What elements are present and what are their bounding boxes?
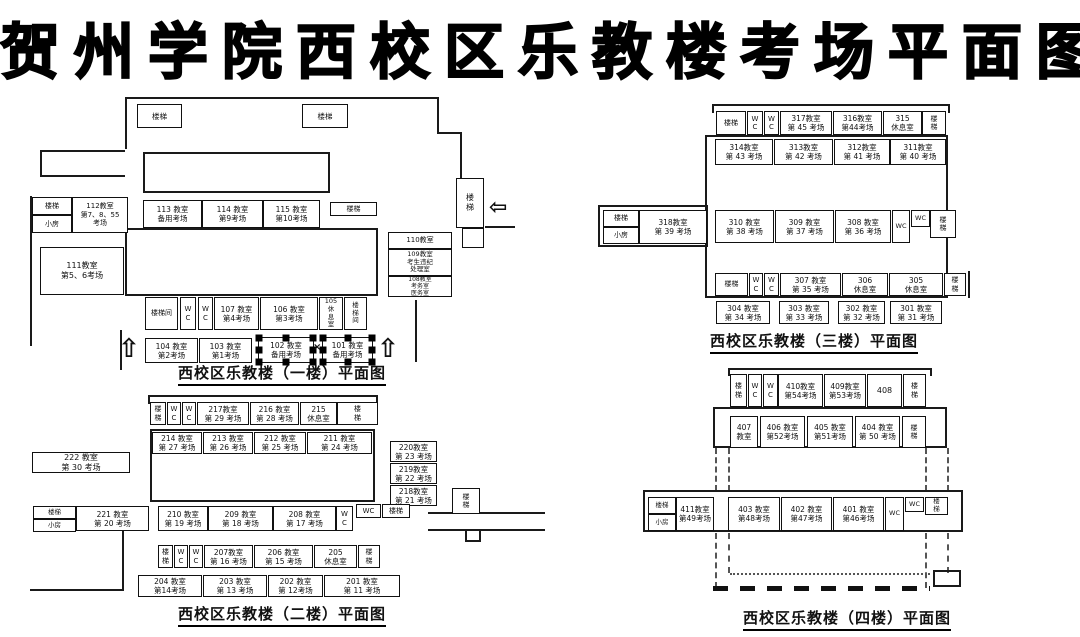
selection-handle[interactable] (310, 335, 317, 342)
room-label: 213 教室 第 26 考场 (210, 434, 247, 452)
stairs-box: 楼 梯 (902, 416, 926, 448)
room-label: 202 教室 第 12考场 (278, 577, 312, 595)
multiply-icon: × (313, 343, 321, 353)
room-label: 403 教室 第48考场 (738, 505, 770, 523)
room-label: 楼梯 (45, 202, 59, 210)
room-404: 404 教室 第 50 考场 (855, 416, 900, 448)
room-label: WC (889, 510, 900, 518)
stairs-box: 楼梯 (648, 497, 676, 514)
selection-handle[interactable] (283, 335, 290, 342)
room-label: 111教室 第5、6考场 (61, 261, 103, 280)
up-arrow-icon: ⇧ (377, 336, 399, 362)
room-label: W C (193, 548, 200, 565)
stairs-box: 楼梯 (716, 111, 746, 135)
room-label: 小房 (45, 220, 59, 228)
room-label: 311教室 第 40 考场 (900, 143, 937, 161)
room-212: 212 教室 第 25 考场 (254, 432, 306, 454)
wc-box: W C (336, 506, 353, 531)
room-label: 405 教室 第51考场 (814, 423, 846, 441)
room-label: 404 教室 第 50 考场 (859, 423, 896, 441)
wall-line (730, 573, 930, 575)
room-103: 103 教室 第1考场 (199, 338, 252, 363)
room-218: 218教室 第 21 考场 (390, 485, 437, 506)
room-label: 408 (877, 386, 892, 396)
room-label: 411教室 第49考场 (679, 505, 711, 523)
room-label: 楼 梯 (931, 115, 938, 132)
wc-box: W C (189, 545, 203, 568)
room-222: 222 教室 第 30 考场 (32, 452, 130, 473)
room-label: 410教室 第54考场 (784, 382, 816, 400)
room-label: 312教室 第 41 考场 (844, 143, 881, 161)
room-label: 102 教室 备用考场 (270, 341, 302, 359)
room-214: 214 教室 第 27 考场 (152, 432, 202, 454)
room-label: 楼 梯 (933, 498, 940, 514)
up-arrow-icon: ⇧ (118, 336, 140, 362)
stairwell-box: 楼 梯 间 (344, 297, 367, 330)
stairs-box: 楼 梯 (903, 374, 926, 407)
room-label: 楼梯间 (151, 309, 172, 317)
room-label: 222 教室 第 30 考场 (61, 453, 100, 472)
selection-handle[interactable] (256, 335, 263, 342)
room-label: 115 教室 第10考场 (275, 205, 307, 223)
room-label: 205 休息室 (324, 548, 347, 566)
room-206: 206 教室 第 15 考场 (254, 545, 313, 568)
wall-line (715, 448, 717, 491)
stairs-box: 楼 梯 (925, 497, 948, 515)
wc-box: WC (356, 504, 381, 518)
room-label: 307 教室 第 35 考场 (792, 276, 829, 294)
wc-box: W C (764, 111, 779, 135)
room-210: 210 教室 第 19 考场 (158, 506, 208, 531)
room-408: 408 (867, 374, 902, 407)
room-406: 406 教室 第52考场 (760, 416, 805, 448)
room-201: 201 教室 第 11 考场 (324, 575, 400, 597)
room-110: 110教室 (388, 232, 452, 249)
wc-box: W C (182, 402, 196, 425)
room-308: 308 教室 第 36 考场 (835, 210, 891, 243)
room-label: W C (752, 382, 759, 399)
rest-room-306: 306 休息室 (842, 273, 888, 296)
room-label: 216 教室 第 28 考场 (256, 405, 293, 423)
room-label: 305 休息室 (905, 276, 928, 294)
room-label: 楼梯 (614, 214, 628, 222)
room-label: 109教室 考生违纪 处理室 (407, 251, 433, 274)
room-label: 楼 梯 (952, 276, 959, 293)
room-209: 209 教室 第 18 考场 (208, 506, 273, 531)
room-label: 楼 梯 (911, 382, 918, 399)
room-label: 315 休息室 (891, 114, 914, 132)
rest-room-305: 305 休息室 (889, 273, 943, 296)
room-401: 401 教室 第46考场 (833, 497, 884, 531)
room-label: 306 休息室 (854, 276, 877, 294)
room-label: 402 教室 第47考场 (790, 505, 822, 523)
room-405: 405 教室 第51考场 (807, 416, 853, 448)
room-407: 407 教室 (730, 416, 758, 448)
stairs-box: 楼梯 (32, 197, 72, 215)
room-312: 312教室 第 41 考场 (834, 139, 890, 165)
room-318: 318教室 第 39 考场 (639, 210, 707, 244)
room-label: 314教室 第 43 考场 (726, 143, 763, 161)
wall-line (947, 448, 949, 491)
room-label: 110教室 (406, 236, 433, 244)
room-label: 楼 梯 (911, 424, 918, 441)
room-label: 楼梯 (347, 205, 361, 213)
room-label: 201 教室 第 11 考场 (344, 577, 381, 595)
room-304: 304 教室 第 34 考场 (716, 301, 770, 324)
room-label: W C (753, 276, 760, 293)
stairs-box: 楼梯 (382, 504, 410, 518)
small-room-box: 小房 (33, 519, 76, 532)
room-302: 302 教室 第 32 考场 (838, 301, 885, 324)
room-label: 楼梯 (152, 112, 167, 121)
room-309: 309 教室 第 37 考场 (775, 210, 834, 243)
room-label: 303 教室 第 33 考场 (786, 304, 823, 322)
room-204: 204 教室 第14考场 (138, 575, 202, 597)
selection-handle[interactable] (369, 335, 376, 342)
room-label: 楼 梯 (463, 493, 470, 510)
room-label: 301 教室 第 31 考场 (898, 304, 935, 322)
selection-handle[interactable] (256, 347, 263, 354)
room-106: 106 教室 第3考场 (260, 297, 318, 330)
wc-box: W C (748, 374, 762, 407)
stairs-box: 楼梯 (302, 104, 348, 128)
room-102: 102 教室 备用考场 (258, 337, 314, 363)
stairs-box: 楼 梯 (730, 374, 747, 407)
wall-line (728, 368, 930, 370)
small-room-box: 小房 (648, 514, 676, 531)
selection-handle[interactable] (320, 335, 327, 342)
room-label: W C (341, 510, 348, 527)
stairs-box: 楼 梯 (922, 111, 946, 135)
stairs-box: 楼梯 (330, 202, 377, 216)
room-203: 203 教室 第 13 考场 (203, 575, 267, 597)
room-label: 406 教室 第52考场 (766, 423, 798, 441)
room-label: 302 教室 第 32 考场 (843, 304, 880, 322)
room-label: 203 教室 第 13 考场 (217, 577, 254, 595)
rest-room-105: 105 休 息 室 (319, 297, 343, 330)
room-label: W C (186, 405, 193, 422)
room-101: 101 教室 备用考场 (322, 337, 373, 363)
stairs-box: 楼梯 (33, 506, 76, 519)
wall-line (925, 533, 927, 588)
wc-box: WC (905, 497, 924, 512)
wall-line (715, 533, 717, 588)
room-217: 217教室 第 29 考场 (197, 402, 249, 425)
room-label: 104 教室 第2考场 (156, 342, 188, 360)
room-113: 113 教室 备用考场 (143, 200, 202, 228)
room-211: 211 教室 第 24 考场 (307, 432, 372, 454)
room-label: 313教室 第 42 考场 (785, 143, 822, 161)
room-label: 219教室 第 22 考场 (395, 465, 432, 483)
room-104: 104 教室 第2考场 (145, 338, 198, 363)
wc-box: W C (764, 273, 779, 296)
room-label: 楼梯 (724, 119, 738, 127)
room-207: 207教室 第 16 考场 (204, 545, 253, 568)
small-room-box: 小房 (603, 227, 639, 244)
room-402: 402 教室 第47考场 (781, 497, 832, 531)
rest-room-315: 315 休息室 (883, 111, 922, 135)
floor-plan-document: 贺州学院西校区乐教楼考场平面图 楼梯楼梯楼梯小房112教室 第7、8、55 考场… (0, 0, 1080, 637)
room-label: W C (185, 305, 192, 322)
room-label: 309 教室 第 37 考场 (786, 218, 823, 236)
room-label: 215 休息室 (307, 405, 330, 423)
room-label: W C (178, 548, 185, 565)
room-label: 楼梯 (656, 502, 669, 510)
room-label: 220教室 第 23 考场 (395, 443, 432, 461)
room-label: WC (363, 507, 375, 515)
room-313: 313教室 第 42 考场 (774, 139, 833, 165)
room-label: 楼 梯 (735, 382, 742, 399)
room-label: 楼梯 (389, 507, 403, 515)
room-label: 317教室 第 45 考场 (788, 114, 825, 132)
room-label: 409教室 第53考场 (829, 382, 861, 400)
room-111: 111教室 第5、6考场 (40, 247, 124, 295)
room-label: 108教室 考务室 医务室 (408, 276, 431, 298)
small-room-box (462, 228, 484, 248)
stairs-box: 楼 梯 (944, 273, 966, 296)
room-216: 216 教室 第 28 考场 (250, 402, 299, 425)
wall-line (925, 448, 927, 491)
room-label: 217教室 第 29 考场 (205, 405, 242, 423)
room-label: 401 教室 第46考场 (842, 505, 874, 523)
room-219: 219教室 第 22 考场 (390, 463, 437, 484)
room-label: W C (752, 115, 759, 132)
room-label: 212 教室 第 25 考场 (262, 434, 299, 452)
stairs-box: 楼 梯 (358, 545, 380, 568)
selection-handle[interactable] (344, 335, 351, 342)
room-310: 310 教室 第 38 考场 (715, 210, 774, 243)
room-307: 307 教室 第 35 考场 (780, 273, 841, 296)
room-label: W C (768, 115, 775, 132)
stairs-box: 楼 梯 (930, 210, 956, 238)
wc-box: W C (747, 111, 763, 135)
room-label: 105 休 息 室 (325, 298, 337, 329)
room-label: 304 教室 第 34 考场 (725, 304, 762, 322)
wall-line (728, 448, 730, 491)
wc-box: W C (763, 374, 778, 407)
room-label: 楼 梯 (940, 216, 947, 233)
room-403: 403 教室 第48考场 (728, 497, 780, 531)
room-label: 楼 梯 (162, 548, 169, 565)
small-room-box: 小房 (32, 215, 72, 233)
room-label: 318教室 第 39 考场 (655, 218, 692, 236)
room-107: 107 教室 第4考场 (214, 297, 259, 330)
room-314: 314教室 第 43 考场 (715, 139, 773, 165)
wc-box: WC (911, 210, 930, 227)
stairs-box: 楼 梯 (452, 488, 480, 514)
stairs-box: 楼梯 (603, 210, 639, 227)
room-label: 214 教室 第 27 考场 (159, 434, 196, 452)
room-label: 209 教室 第 18 考场 (222, 510, 259, 528)
room-label: 106 教室 第3考场 (273, 305, 305, 323)
room-208: 208 教室 第 17 考场 (273, 506, 336, 531)
room-label: 211 教室 第 24 考场 (321, 434, 358, 452)
room-label: 楼 梯 (155, 405, 162, 422)
room-221: 221 教室 第 20 考场 (76, 506, 149, 531)
room-112: 112教室 第7、8、55 考场 (72, 197, 128, 233)
room-114: 114 教室 第9考场 (202, 200, 263, 228)
room-label: 310 教室 第 38 考场 (726, 218, 763, 236)
stairs-box: 楼梯 (715, 273, 748, 296)
floor2-caption: 西校区乐教楼（二楼）平面图 (178, 603, 386, 627)
room-316: 316教室 第44考场 (833, 111, 882, 135)
rest-room-205: 205 休息室 (314, 545, 357, 568)
room-label: WC (915, 215, 926, 223)
stairwell-box: 楼梯间 (145, 297, 178, 330)
room-label: W C (202, 305, 209, 322)
wc-box: WC (885, 497, 904, 531)
wc-box: W C (174, 545, 188, 568)
wc-box: W C (180, 297, 196, 330)
room-label: 101 教室 备用考场 (332, 341, 364, 359)
room-label: 楼 梯 (466, 193, 474, 212)
room-label: 楼 梯 间 (352, 302, 359, 325)
floor1-caption: 西校区乐教楼（一楼）平面图 (178, 362, 386, 386)
room-220: 220教室 第 23 考场 (390, 441, 437, 462)
wall-rect (933, 570, 961, 587)
stairs-box: 楼梯 (137, 104, 182, 128)
room-label: 楼梯 (725, 280, 739, 288)
room-311: 311教室 第 40 考场 (890, 139, 946, 165)
room-label: W C (767, 382, 774, 399)
wc-box: W C (167, 402, 181, 425)
room-label: 楼 梯 (354, 405, 361, 422)
floor3-caption: 西校区乐教楼（三楼）平面图 (710, 330, 918, 354)
room-label: WC (896, 223, 907, 231)
room-label: 204 教室 第14考场 (154, 577, 186, 595)
room-label: 楼梯 (48, 509, 61, 517)
room-label: 218教室 第 21 考场 (395, 487, 432, 505)
room-label: 楼 梯 (366, 548, 373, 565)
room-409: 409教室 第53考场 (824, 374, 866, 407)
room-label: 小房 (614, 231, 628, 239)
room-label: W C (171, 405, 178, 422)
room-label: 113 教室 备用考场 (157, 205, 189, 223)
room-label: 407 教室 (737, 423, 752, 441)
room-label: 楼梯 (318, 112, 333, 121)
room-label: 208 教室 第 17 考场 (286, 510, 323, 528)
room-label: 316教室 第44考场 (841, 114, 873, 132)
room-108: 108教室 考务室 医务室 (388, 276, 452, 297)
rest-room-215: 215 休息室 (300, 402, 337, 425)
room-115: 115 教室 第10考场 (263, 200, 320, 228)
room-label: 107 教室 第4考场 (221, 305, 253, 323)
room-303: 303 教室 第 33 考场 (779, 301, 829, 324)
wc-box: W C (749, 273, 763, 296)
floor4-caption: 西校区乐教楼（四楼）平面图 (743, 607, 951, 631)
room-label: W C (768, 276, 775, 293)
wall-line (728, 533, 730, 573)
left-arrow-icon: ⇦ (489, 197, 507, 219)
stairwell-box: 楼 梯 (456, 178, 484, 228)
stairs-box: 楼 梯 (158, 545, 173, 568)
room-label: 206 教室 第 15 考场 (265, 548, 302, 566)
stairs-box: 楼 梯 (150, 402, 166, 425)
room-317: 317教室 第 45 考场 (780, 111, 832, 135)
room-213: 213 教室 第 26 考场 (203, 432, 253, 454)
room-label: 221 教室 第 20 考场 (94, 510, 131, 528)
wc-box: W C (198, 297, 213, 330)
room-label: 小房 (48, 522, 61, 530)
room-301: 301 教室 第 31 考场 (890, 301, 942, 324)
room-label: 103 教室 第1考场 (210, 342, 242, 360)
wall-line (947, 533, 949, 573)
room-label: 112教室 第7、8、55 考场 (81, 202, 120, 227)
room-411: 411教室 第49考场 (676, 497, 714, 531)
wall-line (713, 586, 930, 591)
room-label: 210 教室 第 19 考场 (165, 510, 202, 528)
room-label: 小房 (656, 519, 669, 527)
room-410: 410教室 第54考场 (778, 374, 823, 407)
room-label: 114 教室 第9考场 (217, 205, 249, 223)
wc-box: WC (892, 210, 910, 243)
room-label: WC (909, 501, 920, 509)
room-label: 207教室 第 16 考场 (210, 548, 247, 566)
room-109: 109教室 考生违纪 处理室 (388, 249, 452, 276)
room-label: 308 教室 第 36 考场 (845, 218, 882, 236)
selection-handle[interactable] (369, 347, 376, 354)
stairs-box: 楼 梯 (337, 402, 378, 425)
wall-line (930, 368, 932, 376)
room-202: 202 教室 第 12考场 (268, 575, 323, 597)
